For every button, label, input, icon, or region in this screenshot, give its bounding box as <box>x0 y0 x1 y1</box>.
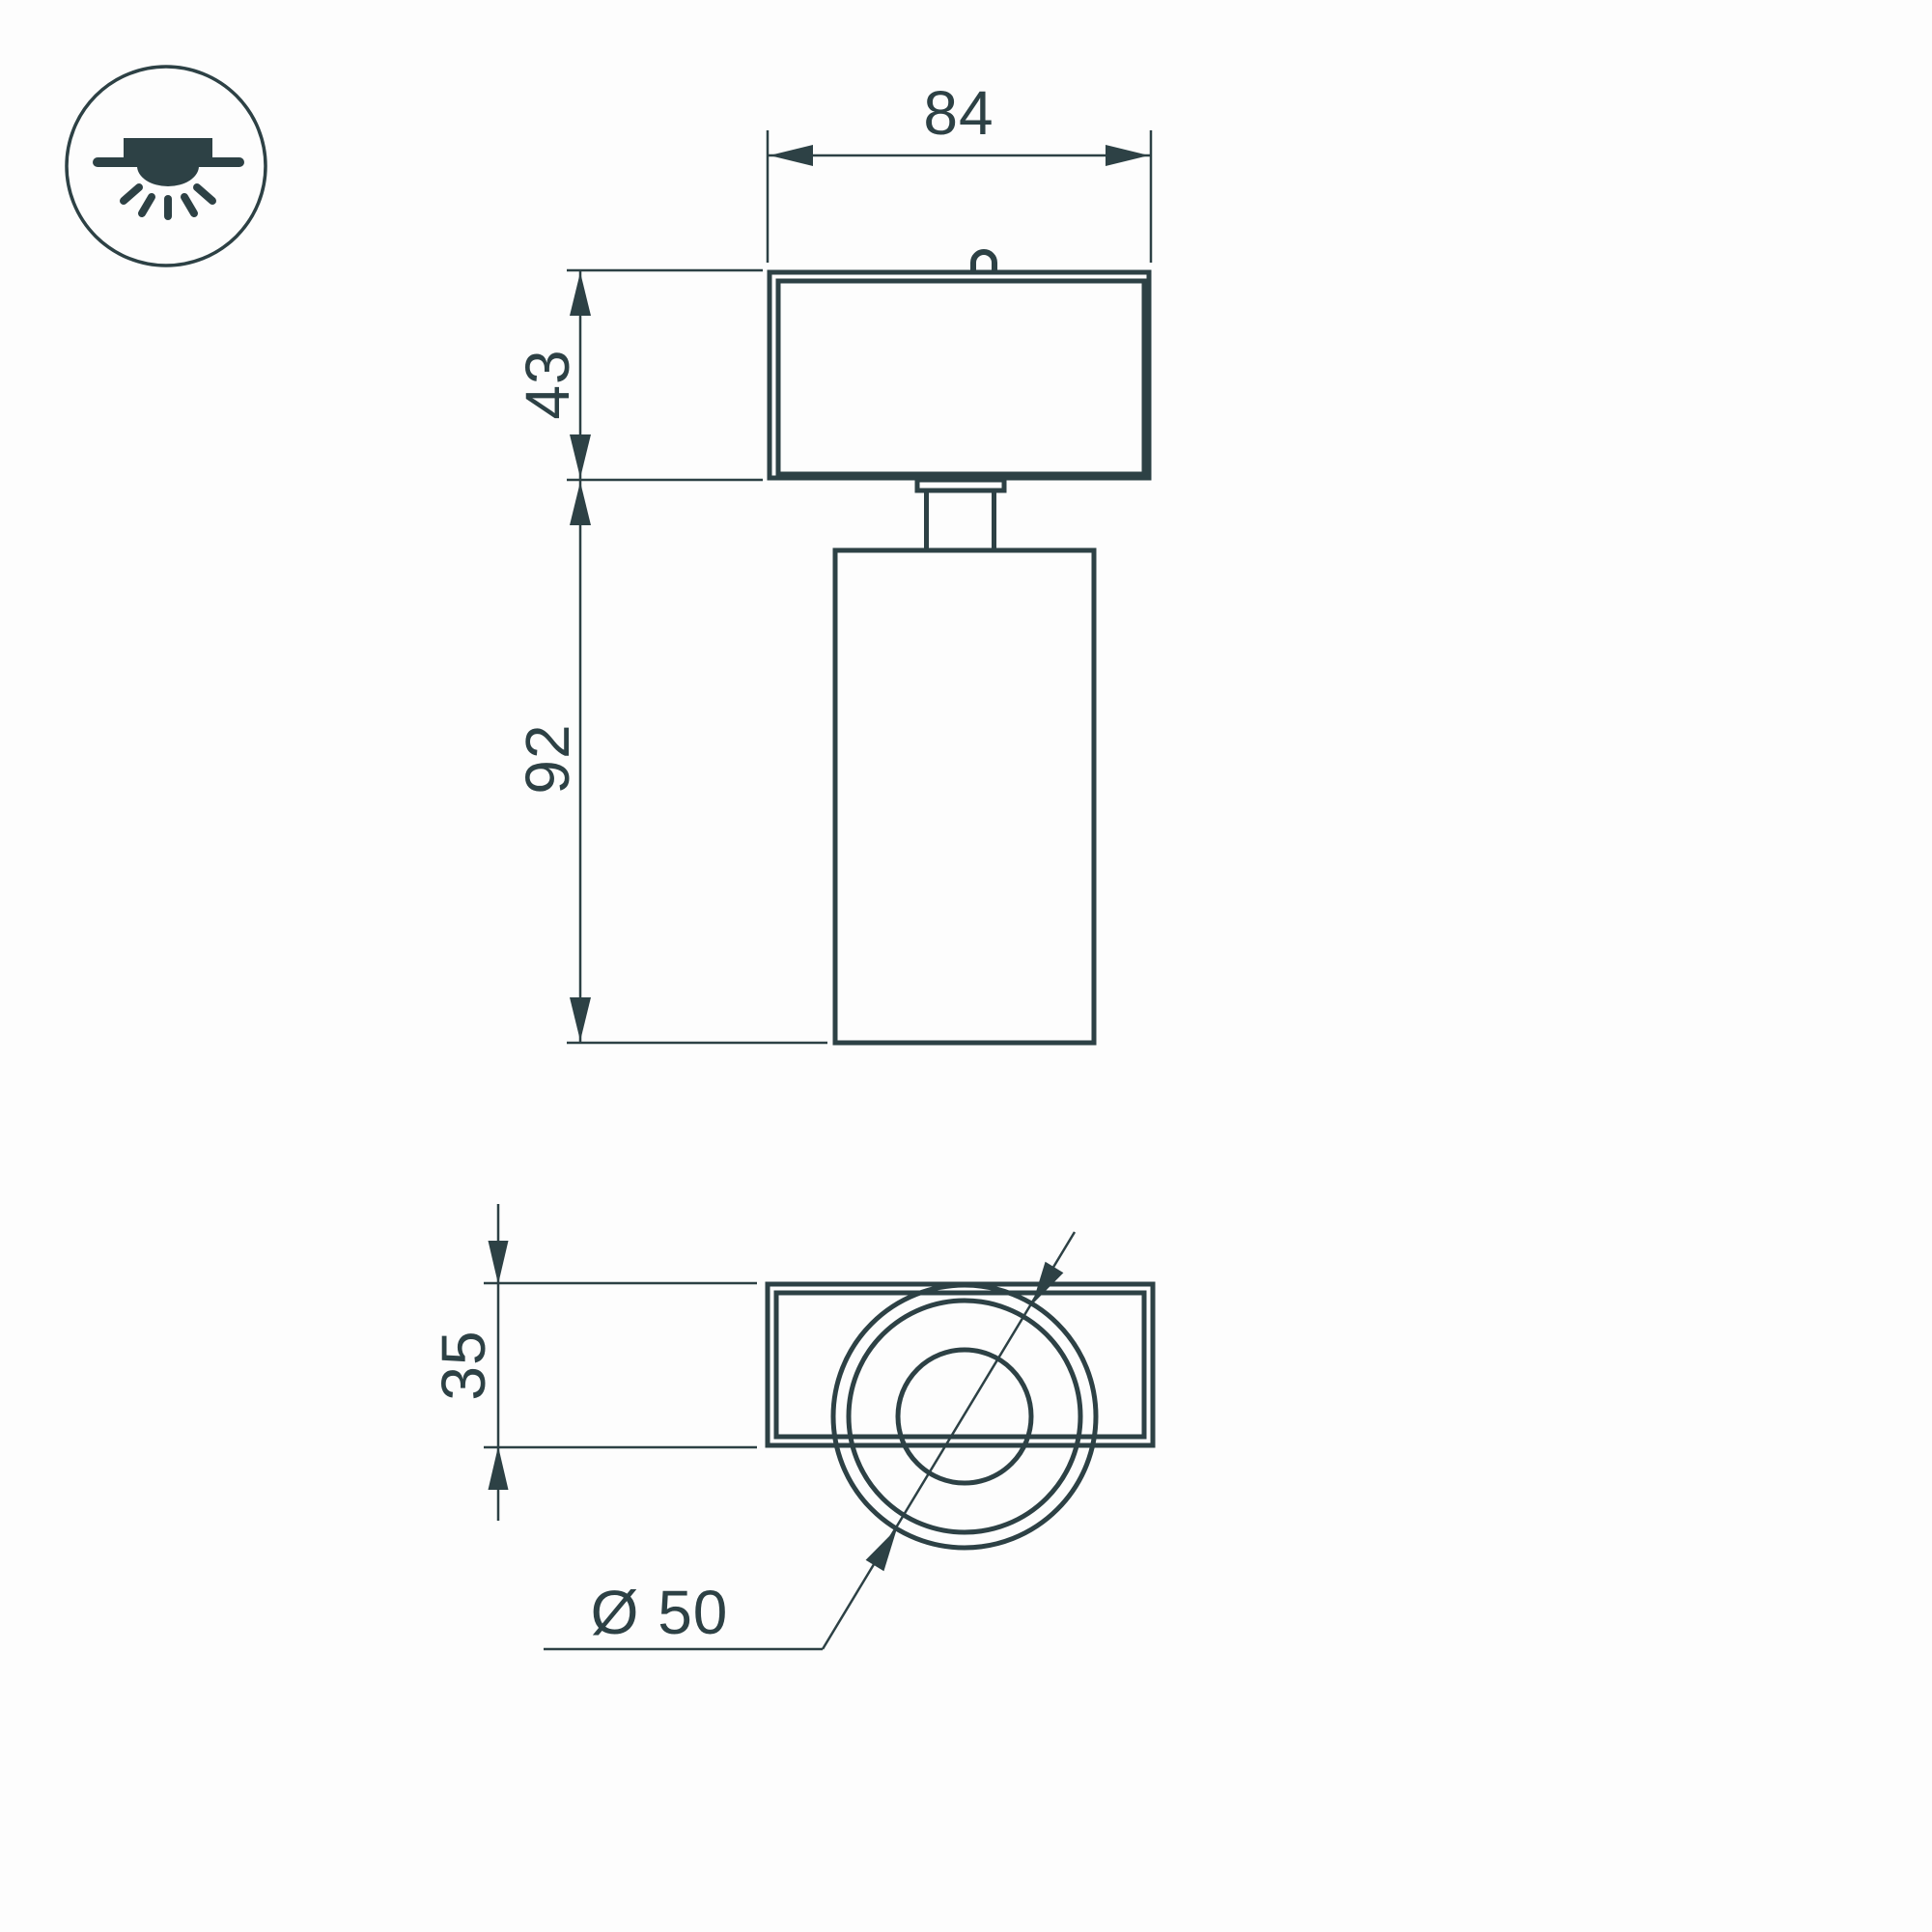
arrowhead-up <box>570 482 591 525</box>
arrowhead-up <box>570 272 591 316</box>
body-cylinder <box>835 550 1094 1043</box>
arrowhead-down <box>570 997 591 1041</box>
ceiling-surface-downlight-icon <box>67 67 266 266</box>
light-ray <box>142 197 152 213</box>
luminaire-dimension-drawing: 84 43 92 35 <box>0 0 1932 1932</box>
bottom-view <box>768 1284 1153 1548</box>
lamp-dome <box>137 166 199 186</box>
front-view <box>770 252 1149 1043</box>
light-ray <box>124 187 139 201</box>
arrowhead-down <box>489 1241 509 1284</box>
arrowhead-up <box>489 1446 509 1490</box>
arrowhead-right <box>1106 145 1149 166</box>
dim-label-head-height: 43 <box>513 349 582 419</box>
adjustment-knob <box>973 252 994 271</box>
head-outer-outline <box>770 272 1149 478</box>
head-inner-outline <box>778 281 1144 474</box>
technical-drawing-page: 84 43 92 35 <box>0 0 1932 1932</box>
light-ray <box>184 197 194 213</box>
dim-label-lens-diameter: Ø 50 <box>591 1578 729 1647</box>
dimension-head-height: 43 <box>513 270 763 480</box>
ceiling-line <box>93 157 244 167</box>
arrowhead-down <box>570 434 591 478</box>
dimension-body-height: 92 <box>513 481 827 1043</box>
light-ray <box>197 187 212 201</box>
dimension-head-width: 84 <box>768 78 1151 263</box>
dim-label-head-width: 84 <box>923 78 994 148</box>
swivel-collar <box>917 480 1004 490</box>
arrowhead-lower <box>866 1528 897 1571</box>
dim-label-body-height: 92 <box>513 723 582 794</box>
arrowhead-left <box>770 145 813 166</box>
dimension-plate-height: 35 <box>429 1204 757 1521</box>
dim-label-plate-height: 35 <box>429 1330 498 1400</box>
